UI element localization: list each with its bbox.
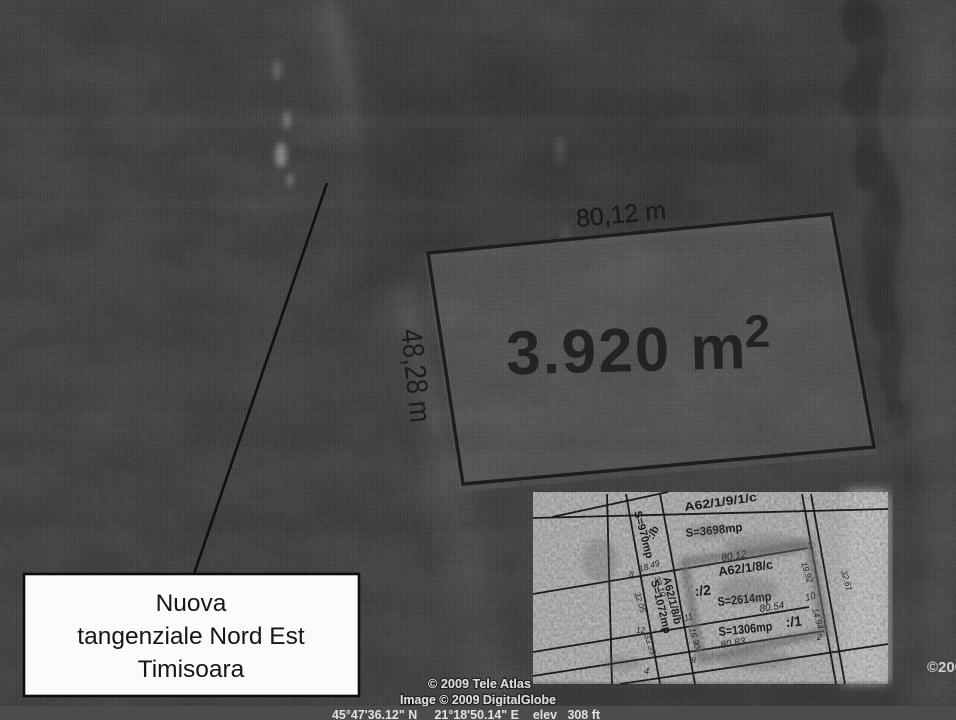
svg-text:Nuova: Nuova [156,590,227,617]
svg-text:Image © 2009 DigitalGlobe: Image © 2009 DigitalGlobe [400,693,556,707]
svg-text:©200: ©200 [927,659,956,676]
svg-text:3.920 m: 3.920 m [505,313,748,388]
svg-text:45°47'36.12" N 21°18'50.14: 45°47'36.12" N 21°18'50.14" E elev 308 f… [332,708,601,720]
svg-text:tangenziale Nord Est: tangenziale Nord Est [77,623,305,650]
svg-text:2: 2 [744,305,771,358]
svg-text:Timisoara: Timisoara [138,656,245,683]
svg-text:© 2009 Tele Atlas: © 2009 Tele Atlas [428,677,531,691]
